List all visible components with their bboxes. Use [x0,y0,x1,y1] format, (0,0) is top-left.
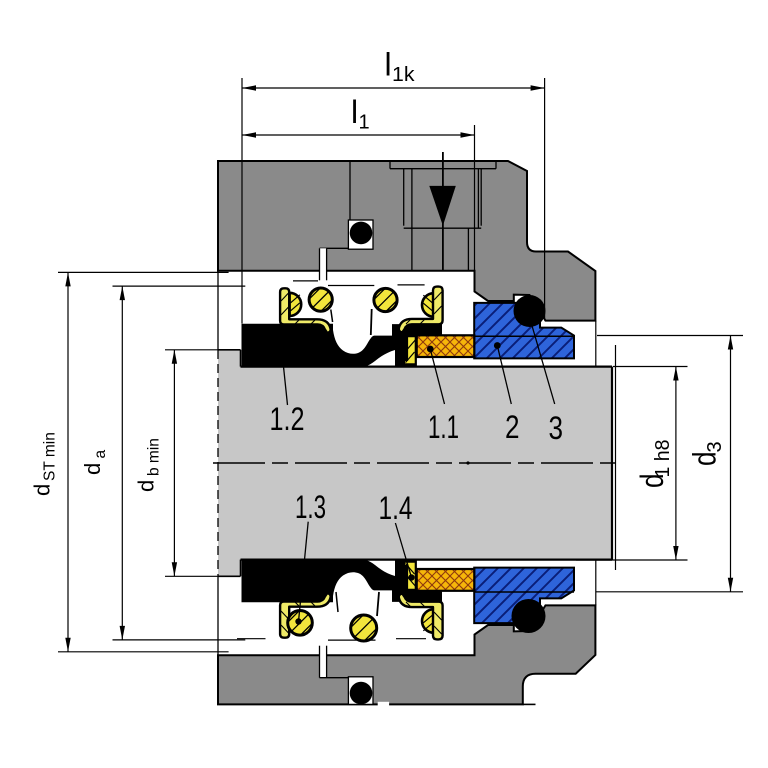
svg-text:d: d [80,463,105,475]
svg-text:ST min: ST min [42,432,59,481]
svg-text:1.3: 1.3 [295,489,326,525]
svg-text:d: d [30,484,55,496]
svg-text:d: d [134,480,159,492]
svg-text:1.1: 1.1 [428,409,459,445]
svg-text:3: 3 [549,410,564,446]
svg-text:2: 2 [505,409,520,445]
svg-text:1.2: 1.2 [270,401,305,437]
svg-text:b min: b min [146,438,163,476]
svg-text:3: 3 [704,441,726,452]
svg-text:1 h8: 1 h8 [652,440,674,478]
svg-text:l: l [351,94,358,130]
svg-text:a: a [92,450,109,459]
svg-text:1k: 1k [392,64,416,86]
svg-text:1.4: 1.4 [379,490,413,526]
svg-text:l: l [385,47,392,83]
svg-text:d: d [687,452,723,467]
svg-text:1: 1 [359,112,370,134]
